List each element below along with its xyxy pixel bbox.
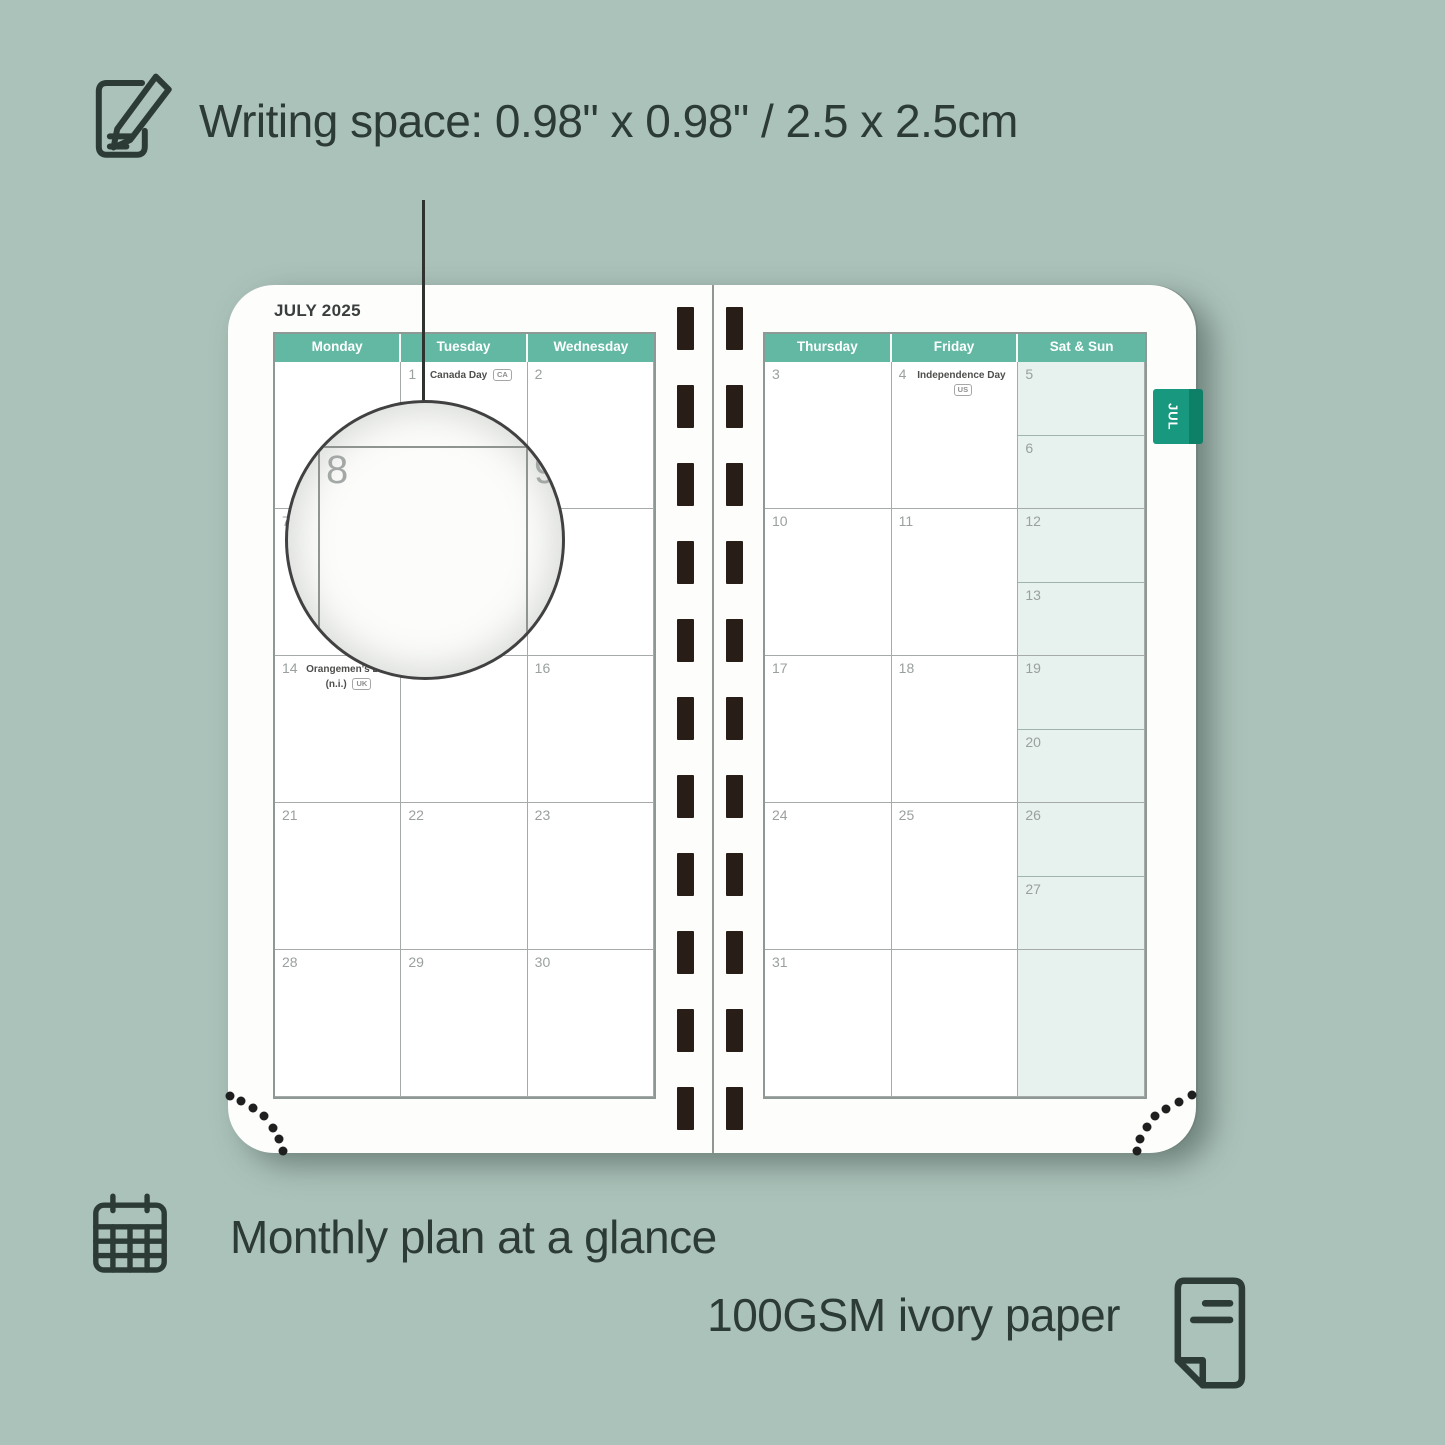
cell-content: 25 xyxy=(892,803,1018,822)
binding-hole xyxy=(726,1009,743,1052)
corner-stitch-dot xyxy=(1188,1091,1197,1100)
date-number: 25 xyxy=(899,808,915,822)
calendar-cell: 24 xyxy=(765,803,892,950)
corner-stitch-dot xyxy=(1162,1105,1171,1114)
binding-hole xyxy=(726,619,743,662)
callout-line xyxy=(422,200,425,402)
month-title: JULY 2025 xyxy=(274,301,361,321)
binding-hole xyxy=(677,619,694,662)
cell-content: 18 xyxy=(892,656,1018,675)
date-number: 30 xyxy=(535,955,551,969)
date-number: 26 xyxy=(1025,807,1041,823)
binding-hole xyxy=(726,463,743,506)
holiday-region-badge: US xyxy=(954,384,972,396)
day-header: Friday xyxy=(892,334,1019,362)
corner-stitch-dot xyxy=(1143,1123,1152,1132)
date-number: 20 xyxy=(1025,734,1041,750)
corner-stitch-dot xyxy=(226,1092,235,1101)
day-header: Monday xyxy=(275,334,401,362)
date-number: 19 xyxy=(1025,660,1041,676)
binding-hole xyxy=(726,541,743,584)
holiday-region-badge: UK xyxy=(352,678,371,690)
holiday-label: Independence Day US xyxy=(906,367,1017,398)
paper-icon xyxy=(1160,1270,1255,1401)
cell-content: 10 xyxy=(765,509,891,528)
month-tab-jul: JUL xyxy=(1153,389,1203,444)
calendar-cell: 22 xyxy=(401,803,527,950)
corner-stitch-dot xyxy=(1175,1098,1184,1107)
date-number: 2 xyxy=(535,367,543,381)
corner-stitch-dot xyxy=(1151,1112,1160,1121)
weekend-cell: 1920 xyxy=(1018,656,1145,803)
calendar-cell: 10 xyxy=(765,509,892,656)
date-number: 5 xyxy=(1025,366,1033,382)
date-number: 16 xyxy=(535,661,551,675)
binding-hole xyxy=(677,1009,694,1052)
date-number: 13 xyxy=(1025,587,1041,603)
month-tab-label: JUL xyxy=(1166,403,1181,431)
feature-monthly-plan: Monthly plan at a glance xyxy=(85,1185,717,1288)
binding-hole xyxy=(726,931,743,974)
binding-hole xyxy=(726,1087,743,1130)
binding-hole xyxy=(677,385,694,428)
weekend-cell xyxy=(1018,950,1145,1097)
cell-content: 4Independence Day US xyxy=(892,362,1018,398)
weekend-day: 20 xyxy=(1018,730,1144,803)
cell-content: 31 xyxy=(765,950,891,969)
binding-hole xyxy=(677,775,694,818)
weekend-day: 12 xyxy=(1018,509,1144,583)
weekend-day: 26 xyxy=(1018,803,1144,877)
date-number: 18 xyxy=(899,661,915,675)
monthly-plan-label: Monthly plan at a glance xyxy=(230,1210,717,1264)
magnified-day-number: 8 xyxy=(326,450,348,490)
corner-stitch-dot xyxy=(249,1104,258,1113)
cell-content: 1Canada Day CA xyxy=(401,362,526,383)
day-header: Sat & Sun xyxy=(1018,334,1145,362)
binding-hole xyxy=(677,1087,694,1130)
calendar-cell: 23 xyxy=(528,803,654,950)
right-page-grid: ThursdayFridaySat & Sun34Independence Da… xyxy=(763,332,1147,1099)
corner-stitch-dot xyxy=(269,1124,278,1133)
date-number: 24 xyxy=(772,808,788,822)
feature-paper: 100GSM ivory paper xyxy=(707,1270,1255,1401)
adjacent-day-number: 9 xyxy=(534,450,556,490)
binding-hole xyxy=(677,697,694,740)
binding-hole xyxy=(677,307,694,350)
date-number: 14 xyxy=(282,661,298,675)
date-number: 3 xyxy=(772,367,780,381)
writing-space-label: Writing space: 0.98" x 0.98" / 2.5 x 2.5… xyxy=(199,94,1018,148)
date-number: 27 xyxy=(1025,881,1041,897)
date-number: 6 xyxy=(1025,440,1033,456)
calendar-cell xyxy=(892,950,1019,1097)
cell-content: 16 xyxy=(528,656,653,675)
magnified-cell-border-right xyxy=(526,447,528,677)
calendar-cell: 30 xyxy=(528,950,654,1097)
weekend-day: 6 xyxy=(1018,436,1144,509)
date-number: 17 xyxy=(772,661,788,675)
calendar-grid-icon xyxy=(85,1185,175,1288)
pencil-note-icon xyxy=(85,70,177,171)
weekend-cell: 2627 xyxy=(1018,803,1145,950)
date-number: 4 xyxy=(899,367,907,381)
binding-hole xyxy=(726,775,743,818)
weekend-day: 27 xyxy=(1018,877,1144,950)
date-number: 29 xyxy=(408,955,424,969)
calendar-cell: 21 xyxy=(275,803,401,950)
weekend-day: 19 xyxy=(1018,656,1144,730)
date-number: 21 xyxy=(282,808,298,822)
binding-hole xyxy=(726,385,743,428)
cell-content: 23 xyxy=(528,803,653,822)
date-number: 22 xyxy=(408,808,424,822)
day-header: Wednesday xyxy=(528,334,654,362)
date-number: 31 xyxy=(772,955,788,969)
date-number: 11 xyxy=(899,514,914,528)
calendar-cell: 4Independence Day US xyxy=(892,362,1019,509)
corner-stitch-dot xyxy=(1136,1135,1145,1144)
binding-hole xyxy=(677,463,694,506)
corner-stitch-dot xyxy=(260,1112,269,1121)
holiday-label: Canada Day CA xyxy=(416,367,527,383)
date-number: 23 xyxy=(535,808,551,822)
cell-content: 28 xyxy=(275,950,400,969)
calendar-cell: 18 xyxy=(892,656,1019,803)
cell-content: 30 xyxy=(528,950,653,969)
cell-content: 17 xyxy=(765,656,891,675)
calendar-cell: 3 xyxy=(765,362,892,509)
calendar-cell: 16 xyxy=(528,656,654,803)
calendar-cell: 17 xyxy=(765,656,892,803)
cell-content: 11 xyxy=(892,509,1018,528)
day-header: Tuesday xyxy=(401,334,527,362)
cell-content: 24 xyxy=(765,803,891,822)
calendar-cell: 29 xyxy=(401,950,527,1097)
corner-stitch-dot xyxy=(279,1147,288,1156)
cell-content: 29 xyxy=(401,950,526,969)
magnifier-circle: 8 9 xyxy=(285,400,565,680)
date-number: 28 xyxy=(282,955,298,969)
binding-hole xyxy=(677,541,694,584)
date-number: 10 xyxy=(772,514,788,528)
paper-label: 100GSM ivory paper xyxy=(707,1288,1120,1342)
corner-stitch-dot xyxy=(275,1135,284,1144)
calendar-cell: 31 xyxy=(765,950,892,1097)
cell-content: 22 xyxy=(401,803,526,822)
calendar-cell: 25 xyxy=(892,803,1019,950)
cell-content: 3 xyxy=(765,362,891,381)
cell-content: 2 xyxy=(528,362,653,381)
magnified-cell-border-left xyxy=(318,447,320,677)
weekend-cell: 56 xyxy=(1018,362,1145,509)
calendar-cell: 11 xyxy=(892,509,1019,656)
cell-content: 21 xyxy=(275,803,400,822)
binding-hole xyxy=(726,853,743,896)
calendar-cell: 14Orangemen's Day (n.i.) UK xyxy=(275,656,401,803)
date-number: 1 xyxy=(408,367,416,381)
holiday-region-badge: CA xyxy=(493,369,512,381)
weekend-cell: 1213 xyxy=(1018,509,1145,656)
product-image: Writing space: 0.98" x 0.98" / 2.5 x 2.5… xyxy=(0,0,1445,1445)
page-gutter xyxy=(712,285,714,1153)
corner-stitch-dot xyxy=(1133,1147,1142,1156)
corner-stitch-dot xyxy=(237,1097,246,1106)
binding-hole xyxy=(726,697,743,740)
date-number: 12 xyxy=(1025,513,1041,529)
binding-hole xyxy=(677,931,694,974)
weekend-day: 5 xyxy=(1018,362,1144,436)
cell-content xyxy=(275,362,400,367)
calendar-cell: 28 xyxy=(275,950,401,1097)
day-header: Thursday xyxy=(765,334,892,362)
writing-space-callout: Writing space: 0.98" x 0.98" / 2.5 x 2.5… xyxy=(85,70,1018,171)
binding-hole xyxy=(726,307,743,350)
cell-content xyxy=(892,950,1018,955)
weekend-day xyxy=(1018,950,1144,1096)
weekend-day: 13 xyxy=(1018,583,1144,656)
binding-hole xyxy=(677,853,694,896)
